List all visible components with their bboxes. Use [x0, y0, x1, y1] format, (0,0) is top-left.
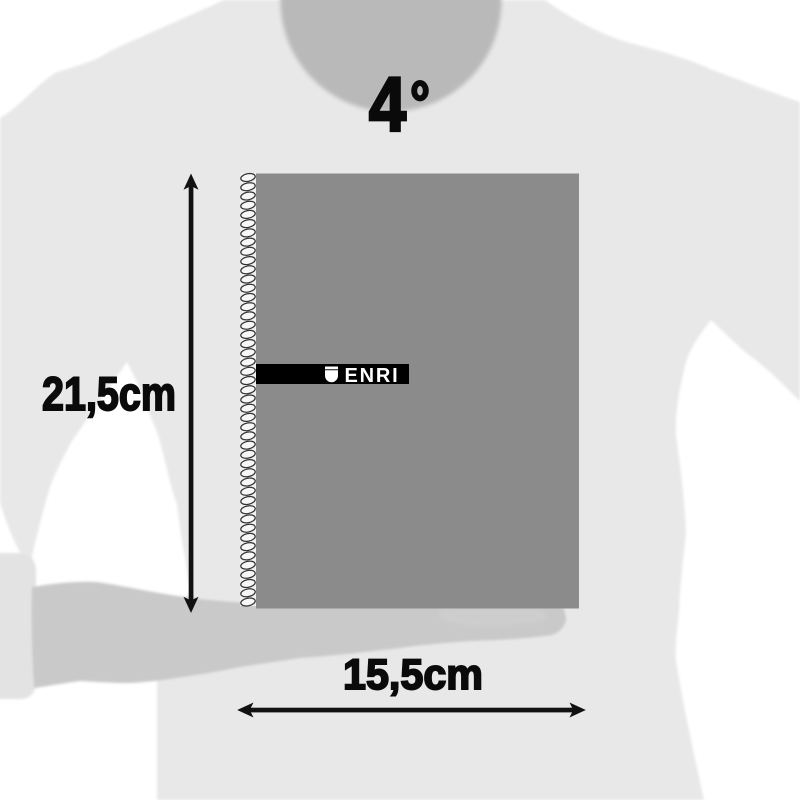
svg-text:15,5cm: 15,5cm: [343, 651, 483, 699]
svg-text:ENRI: ENRI: [345, 365, 400, 387]
svg-text:21,5cm: 21,5cm: [42, 367, 176, 420]
svg-text:4: 4: [369, 63, 406, 148]
